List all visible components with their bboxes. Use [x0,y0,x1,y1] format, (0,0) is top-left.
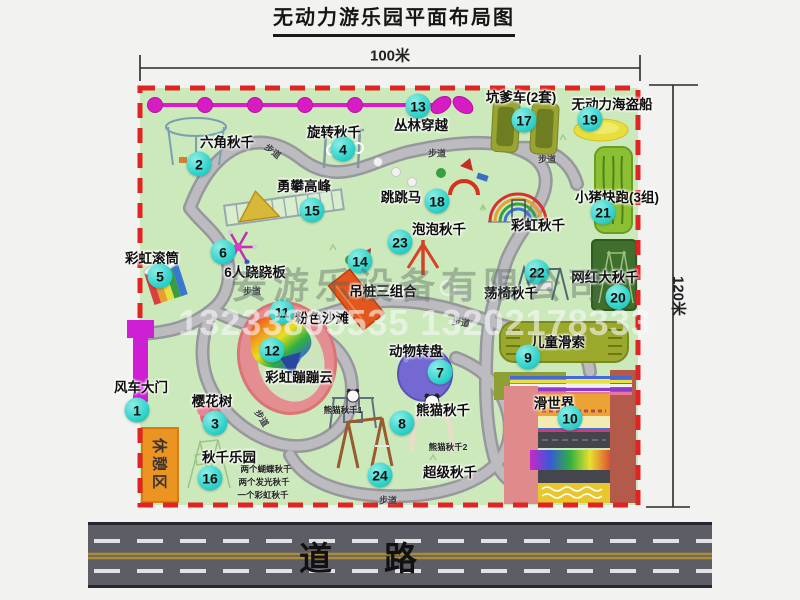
page-title: 无动力游乐园平面布局图 [273,1,515,37]
marker-15: 15 [300,198,325,223]
marker-23: 23 [388,230,413,255]
marker-3: 3 [203,411,228,436]
feature-label-8: 熊猫秋千 [416,399,470,419]
sub-label-5: 一个彩虹秋千 [237,489,288,501]
feature-label-4: 旋转秋千 [307,121,361,141]
feature-label-24: 超级秋千 [423,461,477,481]
feature-label-5: 彩虹滚筒 [125,247,179,267]
marker-24: 24 [368,463,393,488]
marker-17: 17 [512,108,537,133]
marker-1: 1 [125,398,150,423]
feature-label-3: 樱花树 [192,390,233,410]
screenshot-root: 无动力游乐园平面布局图 100米 120米 1风车大门2六角秋千3樱花树4旋转秋… [0,0,800,600]
marker-4: 4 [331,137,356,162]
walkway-label-3: 步道 [538,153,556,166]
sub-label-2: 熊猫秋千2 [429,441,468,453]
walkway-label-2: 步道 [428,147,446,160]
marker-16: 16 [198,466,223,491]
feature-label-23: 泡泡秋千 [412,218,466,238]
marker-8: 8 [390,411,415,436]
slide-world-icon [494,370,636,504]
marker-2: 2 [187,152,212,177]
marker-7: 7 [428,360,453,385]
sub-label-1: 熊猫秋千1 [324,404,363,416]
feature-label-1: 风车大门 [114,376,168,396]
marker-18: 18 [425,189,450,214]
marker-5: 5 [148,264,173,289]
marker-21: 21 [591,200,616,225]
feature-label-15: 勇攀高峰 [277,175,331,195]
road-label: 道路 [247,532,469,580]
width-dimension-label: 100米 [370,45,410,66]
feature-label-12: 彩虹蹦蹦云 [265,366,333,386]
feature-label-21: 小猪快跑(3组) [575,186,659,206]
marker-9: 9 [516,345,541,370]
feature-label-2: 六角秋千 [200,131,254,151]
feature-label-rainbow-swing: 彩虹秋千 [511,214,565,234]
feature-label-18: 跳跳马 [381,186,422,206]
sub-label-3: 两个蝴蝶秋千 [240,463,291,475]
walkway-label-7: 步道 [379,494,397,507]
sub-label-4: 两个发光秋千 [238,476,289,488]
marker-10: 10 [558,406,583,431]
marker-19: 19 [578,107,603,132]
rest-area-label: 休憩区 [150,438,171,492]
feature-label-17: 坑爹车(2套) [486,86,557,106]
watermark-phones: 13233805535 13202178333 [178,302,651,344]
marker-13: 13 [406,94,431,119]
height-dimension-label: 120米 [669,276,690,316]
